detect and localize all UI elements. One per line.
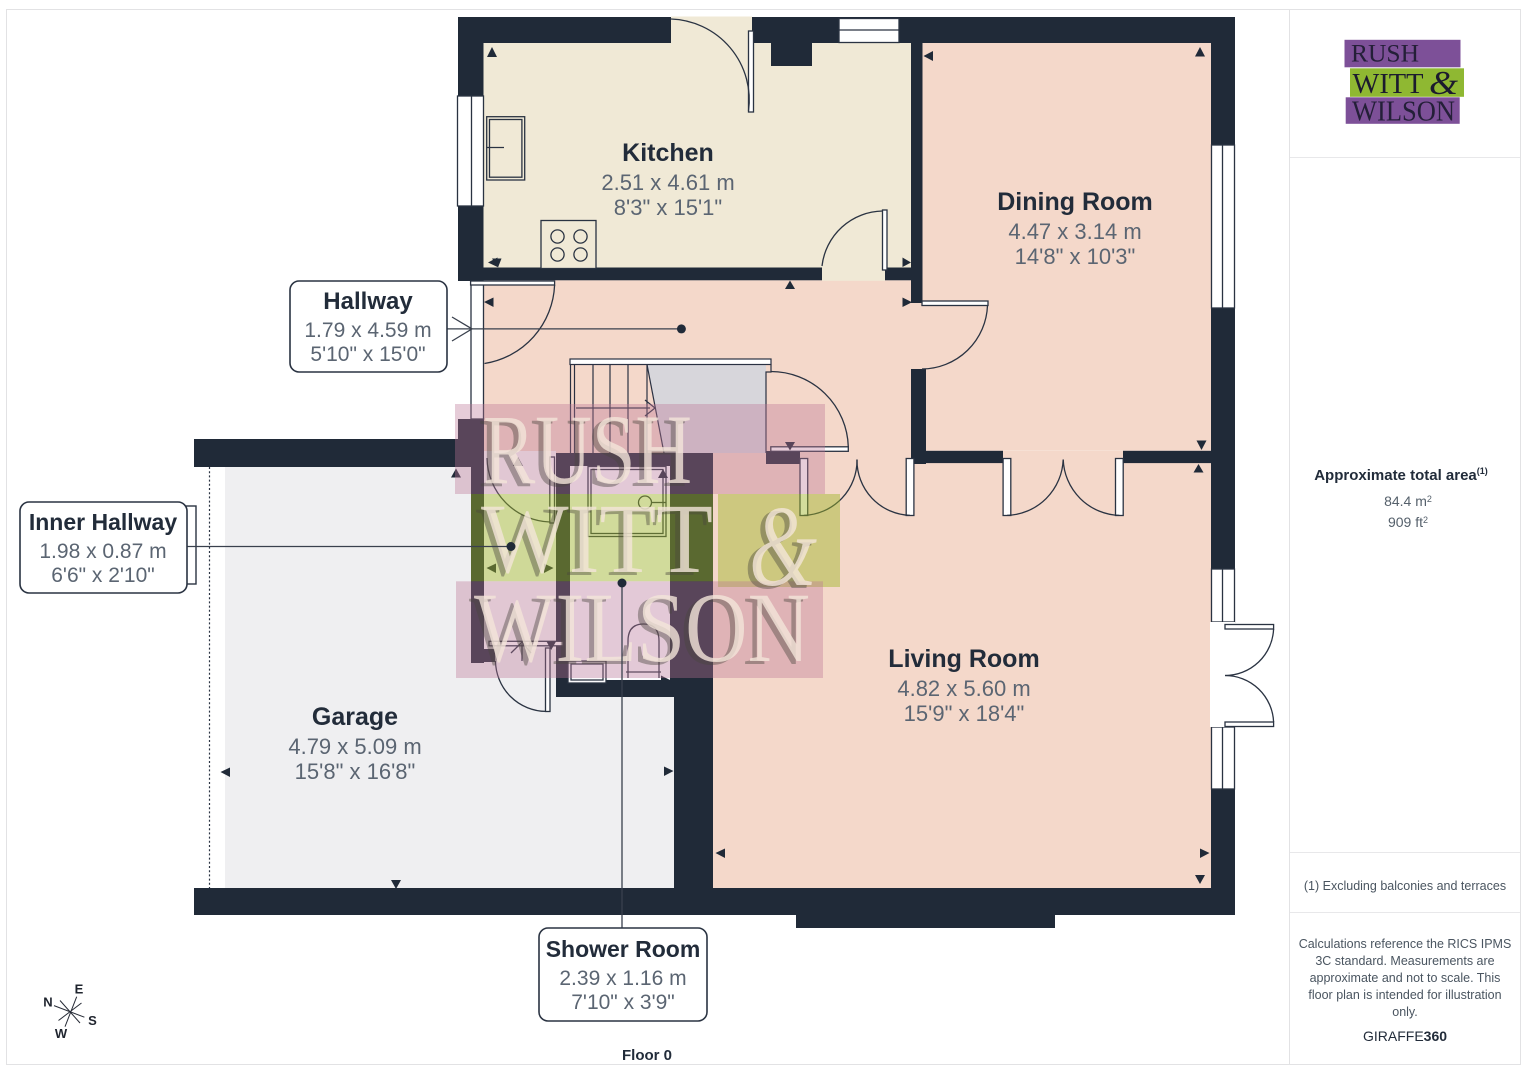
- svg-text:4.79 x 5.09 m: 4.79 x 5.09 m: [288, 734, 421, 759]
- svg-text:only.: only.: [1392, 1005, 1417, 1019]
- svg-text:2.39 x 1.16 m: 2.39 x 1.16 m: [559, 967, 686, 990]
- svg-text:6'6" x 2'10": 6'6" x 2'10": [51, 564, 155, 587]
- svg-text:GIRAFFE360: GIRAFFE360: [1363, 1028, 1447, 1044]
- svg-text:Inner Hallway: Inner Hallway: [29, 509, 177, 535]
- svg-text:E: E: [75, 982, 84, 997]
- svg-text:Shower Room: Shower Room: [546, 936, 701, 962]
- svg-text:14'8" x 10'3": 14'8" x 10'3": [1015, 244, 1136, 269]
- svg-text:Dining Room: Dining Room: [997, 188, 1153, 216]
- svg-text:7'10" x 3'9": 7'10" x 3'9": [571, 991, 675, 1014]
- svg-text:Hallway: Hallway: [323, 288, 413, 315]
- svg-text:15'8" x 16'8": 15'8" x 16'8": [295, 759, 416, 784]
- svg-text:Approximate total area(1): Approximate total area(1): [1314, 466, 1488, 484]
- svg-text:Floor 0: Floor 0: [622, 1047, 672, 1064]
- svg-text:909 ft2: 909 ft2: [1388, 514, 1428, 530]
- svg-text:Calculations reference the RIC: Calculations reference the RICS IPMS: [1299, 937, 1512, 951]
- svg-text:2.51 x 4.61 m: 2.51 x 4.61 m: [601, 170, 734, 195]
- svg-text:84.4 m2: 84.4 m2: [1384, 493, 1432, 509]
- svg-text:8'3" x 15'1": 8'3" x 15'1": [614, 195, 722, 220]
- svg-text:1.98 x 0.87 m: 1.98 x 0.87 m: [39, 540, 166, 563]
- svg-text:5'10" x 15'0": 5'10" x 15'0": [310, 343, 425, 366]
- svg-text:N: N: [43, 995, 52, 1010]
- svg-text:(1) Excluding balconies and te: (1) Excluding balconies and terraces: [1304, 879, 1506, 893]
- svg-text:Garage: Garage: [312, 703, 398, 731]
- svg-text:Living Room: Living Room: [888, 645, 1039, 673]
- svg-text:15'9" x 18'4": 15'9" x 18'4": [904, 701, 1025, 726]
- svg-text:RUSH: RUSH: [1351, 41, 1419, 68]
- svg-text:floor plan is intended for ill: floor plan is intended for illustration: [1308, 988, 1501, 1002]
- svg-text:4.47 x 3.14 m: 4.47 x 3.14 m: [1008, 219, 1141, 244]
- svg-text:W: W: [55, 1026, 68, 1041]
- svg-text:approximate and not to scale.: approximate and not to scale. This: [1310, 971, 1501, 985]
- svg-text:S: S: [88, 1013, 97, 1028]
- svg-text:&: &: [749, 483, 817, 610]
- svg-text:Kitchen: Kitchen: [622, 139, 714, 167]
- svg-text:3C standard. Measurements are: 3C standard. Measurements are: [1315, 954, 1494, 968]
- svg-text:1.79 x 4.59 m: 1.79 x 4.59 m: [304, 319, 431, 342]
- svg-text:WITT: WITT: [1353, 68, 1424, 100]
- svg-text:WILSON: WILSON: [1352, 97, 1455, 128]
- svg-text:4.82 x 5.60 m: 4.82 x 5.60 m: [897, 676, 1030, 701]
